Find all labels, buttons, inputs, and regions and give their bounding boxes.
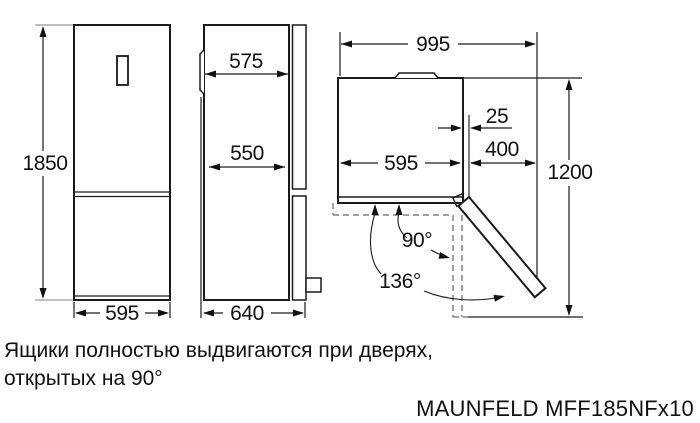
dim-front-width: 595: [105, 302, 139, 325]
arc-90-arrowhead: [438, 252, 450, 261]
dim-top-width: 595: [384, 152, 418, 175]
dimension-drawing: 1850 595 575 550 640: [0, 0, 700, 423]
dim-top-clearance: 400: [485, 138, 519, 161]
dim-side-depth: 575: [229, 50, 263, 73]
top-cabinet-outline: [338, 78, 463, 203]
door-90-dashed-outline: [333, 203, 468, 317]
dim-front-height: 1850: [22, 152, 67, 175]
arc-start-arrowheads: [372, 204, 403, 215]
dim-angle-136: 136°: [379, 270, 421, 293]
door-handle: [200, 50, 204, 94]
dim-top-total-width: 995: [416, 33, 450, 56]
model-name: MAUNFELD MFF185NFx10: [416, 396, 694, 422]
rear-spacer-upper: [293, 25, 307, 189]
dim-side-inner-depth: 550: [230, 142, 264, 165]
open-door: [458, 197, 545, 297]
dim-angle-90: 90°: [402, 229, 433, 252]
top-view: [333, 32, 583, 317]
hinge-cover-bump: [395, 73, 438, 78]
fridge-dimensions-svg: 1850 595 575 550 640: [0, 0, 700, 340]
dim-top-depth-open: 1200: [547, 161, 592, 184]
caption-text: Ящики полностью выдвигаются при дверях, …: [4, 337, 433, 393]
arc-136-segment-a: [370, 213, 381, 274]
rear-spacer-lower: [293, 196, 307, 300]
dim-side-total-depth: 640: [230, 302, 264, 325]
compressor-box: [306, 278, 321, 292]
arc-136-arrowhead: [494, 293, 506, 302]
caption-line-1: Ящики полностью выдвигаются при дверях,: [4, 337, 433, 365]
dim-top-gap: 25: [486, 105, 509, 128]
caption-line-2: открытых на 90°: [4, 365, 433, 393]
front-cabinet-outline: [74, 25, 170, 300]
